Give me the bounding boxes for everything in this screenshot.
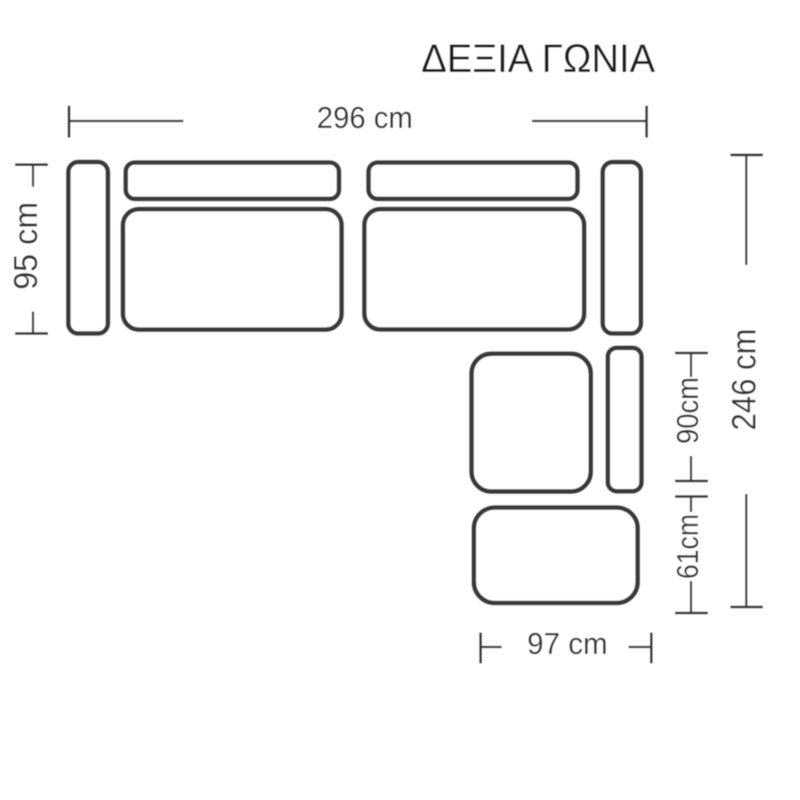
svg-text:61cm: 61cm [671,514,705,579]
svg-text:97 cm: 97 cm [527,627,608,661]
svg-text:90cm: 90cm [671,377,705,444]
svg-text:ΔΕΞΙΑ ΓΩΝΙΑ: ΔΕΞΙΑ ΓΩΝΙΑ [421,37,655,81]
svg-text:95 cm: 95 cm [8,202,45,290]
svg-text:246 cm: 246 cm [726,329,764,431]
svg-text:296 cm: 296 cm [317,101,413,135]
